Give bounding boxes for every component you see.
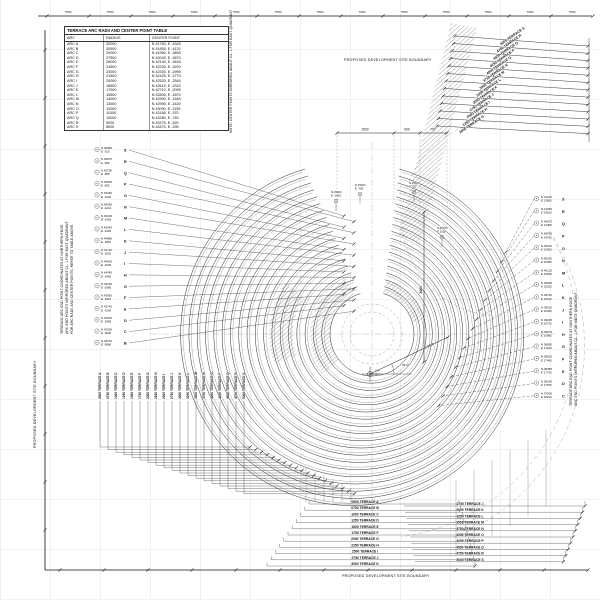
point-marker-dot bbox=[97, 319, 98, 320]
terrace-letter: L bbox=[124, 228, 127, 232]
point-marker-dot bbox=[536, 395, 537, 396]
terrace-row-label: 5000 TERRACE S bbox=[456, 558, 484, 562]
leader-tick bbox=[462, 346, 465, 349]
terrace-letter: S bbox=[562, 198, 565, 202]
bottom-boundary-label: PROPOSED DEVELOPMENT SITE BOUNDARY bbox=[342, 574, 430, 578]
terrace-row-label: 2500 TERRACE I bbox=[352, 550, 378, 554]
terrace-stair-label: 2750 TERRACE J bbox=[170, 373, 174, 399]
terrace-stair-label: 2000 TERRACE G bbox=[146, 372, 150, 399]
leader-tick bbox=[352, 242, 355, 245]
terrace-stair-label: 3250 TERRACE L bbox=[186, 373, 190, 399]
terrace-letter: I bbox=[124, 262, 125, 266]
coord-leader bbox=[506, 199, 534, 252]
top-boundary-label: PROPOSED DEVELOPMENT SITE BOUNDARY bbox=[344, 58, 432, 62]
terrace-row-label: 4750 TERRACE R bbox=[456, 552, 484, 556]
terrace-stair-label: 4000 TERRACE O bbox=[210, 372, 214, 399]
terrace-stair-label: 4750 TERRACE R bbox=[234, 372, 238, 399]
left-boundary-label: PROPOSED DEVELOPMENT SITE BOUNDARY bbox=[33, 360, 37, 448]
coord-east: E 18210 bbox=[541, 395, 552, 399]
boundary-segment-dim: 7500 bbox=[107, 10, 114, 14]
terrace-stair-label: 1750 TERRACE F bbox=[138, 373, 142, 399]
point-marker-dot bbox=[97, 297, 98, 298]
terrace-arc-inner-edge bbox=[191, 179, 515, 496]
terrace-letter: E bbox=[562, 370, 565, 374]
terrace-letter: M bbox=[124, 217, 127, 221]
coord-east: E 16725 bbox=[541, 321, 552, 325]
terrace-letter: D bbox=[562, 382, 565, 386]
terrace-stair-label: 4250 TERRACE P bbox=[218, 372, 222, 399]
point-marker-dot bbox=[97, 342, 98, 343]
leader-tick bbox=[352, 220, 355, 223]
coord-east: E 14465 bbox=[541, 223, 552, 227]
terrace-row-label: 1000 TERRACE C bbox=[351, 512, 379, 516]
point-marker-dot bbox=[536, 309, 537, 310]
terrace-letter: R bbox=[124, 160, 127, 164]
coord-east: E 17735 bbox=[541, 371, 552, 375]
point-marker-dot bbox=[536, 260, 537, 261]
terrace-letter: R bbox=[562, 210, 565, 214]
point-marker-dot bbox=[97, 217, 98, 218]
coord-east: E -3385 bbox=[101, 320, 112, 324]
terrace-letter: K bbox=[124, 239, 127, 243]
terrace-row-label: 3250 TERRACE L bbox=[456, 514, 483, 518]
leader-tick bbox=[479, 308, 482, 311]
terrace-letter: K bbox=[562, 296, 565, 300]
point-marker-dot bbox=[536, 210, 537, 211]
terrace-letter: H bbox=[124, 273, 127, 277]
coord-east: E -1020 bbox=[101, 195, 112, 199]
terrace-arc-inner-edge bbox=[224, 207, 490, 468]
terrace-fan-line bbox=[449, 66, 588, 75]
left-note-line-3: FOR ARC RADII AND CENTER POINTS, REFER T… bbox=[70, 221, 75, 334]
terrace-letter: S bbox=[124, 149, 127, 153]
point-marker-dot bbox=[536, 235, 537, 236]
terrace-letter: M bbox=[562, 271, 565, 275]
coord-leader bbox=[489, 248, 534, 290]
point-marker-dot bbox=[97, 194, 98, 195]
coord-leader bbox=[129, 195, 344, 238]
point-marker-dot bbox=[336, 201, 337, 202]
coord-east: E 17975 bbox=[541, 383, 552, 387]
terrace-stair-label: 3000 TERRACE K bbox=[178, 372, 182, 399]
point-marker-dot bbox=[360, 194, 361, 195]
point-marker-dot bbox=[442, 237, 443, 238]
table-note: NOTE: CENTER POINTS MIRRORED ABOUT CL. 1… bbox=[229, 10, 233, 133]
coord-leader bbox=[129, 173, 344, 228]
coord-leader bbox=[502, 211, 534, 261]
terrace-row-label: 4500 TERRACE Q bbox=[456, 545, 484, 549]
coord-east: E 17490 bbox=[541, 358, 552, 362]
terrace-fan-line bbox=[452, 51, 588, 61]
coord-east: E -2680 bbox=[101, 286, 112, 290]
point-marker-dot bbox=[536, 198, 537, 199]
terrace-stair-label: 2250 TERRACE H bbox=[154, 372, 158, 399]
point-marker-dot bbox=[97, 240, 98, 241]
terrace-row-label: 3000 TERRACE K bbox=[351, 562, 379, 566]
leader-tick bbox=[342, 226, 345, 229]
point-marker-dot bbox=[536, 284, 537, 285]
coord-east: E -1500 bbox=[331, 193, 341, 197]
coord-east: E 16190 bbox=[541, 297, 552, 301]
leader-tick bbox=[352, 231, 355, 234]
coord-east: E 14160 bbox=[541, 211, 552, 215]
point-marker-dot bbox=[536, 247, 537, 248]
point-marker-dot bbox=[97, 149, 98, 150]
point-marker-dot bbox=[97, 285, 98, 286]
angle-arc bbox=[392, 364, 394, 374]
coord-leader bbox=[498, 224, 534, 272]
boundary-segment-dim: 7500 bbox=[65, 10, 72, 14]
coord-east: E -750 bbox=[355, 186, 364, 190]
coord-east: E -480 bbox=[101, 161, 110, 165]
terrace-fan-line bbox=[445, 89, 589, 98]
terrace-hatch-mid bbox=[269, 283, 305, 363]
arc-table-title: TERRACE ARC RADII AND CENTER POINT TABLE bbox=[65, 27, 228, 35]
terrace-letter: P bbox=[124, 183, 127, 187]
terrace-letter: C bbox=[562, 394, 565, 398]
point-marker-dot bbox=[97, 274, 98, 275]
coord-east: E -1605 bbox=[101, 229, 112, 233]
coord-leader bbox=[129, 289, 354, 298]
terrace-row-label: 2000 TERRACE G bbox=[351, 537, 379, 541]
coord-east: E 15060 bbox=[541, 248, 552, 252]
terrace-letter: E bbox=[124, 308, 127, 312]
boundary-segment-dim: 7500 bbox=[191, 10, 198, 14]
cell-arc: ARC S bbox=[65, 125, 104, 130]
coord-leader bbox=[129, 150, 344, 216]
terrace-fan-line bbox=[439, 119, 589, 127]
coord-east: E 14765 bbox=[541, 235, 552, 239]
terrace-letter: H bbox=[562, 333, 565, 337]
point-marker-dot bbox=[97, 251, 98, 252]
terrace-fan-line bbox=[442, 104, 589, 112]
terrace-stair-label: 2500 TERRACE I bbox=[162, 374, 166, 399]
point-marker-dot bbox=[97, 160, 98, 161]
terrace-letter: P bbox=[562, 235, 565, 239]
terrace-row-label: 1750 TERRACE F bbox=[351, 531, 378, 535]
coord-east: E 15635 bbox=[541, 272, 552, 276]
coord-east: E -2910 bbox=[101, 297, 112, 301]
terrace-arc bbox=[189, 176, 518, 498]
terrace-stair-label: 5000 TERRACE S bbox=[242, 373, 246, 399]
terrace-row-label: 0750 TERRACE B bbox=[351, 506, 379, 510]
dim-value: 900 bbox=[404, 128, 410, 132]
leader-tick bbox=[342, 237, 345, 240]
coord-leader bbox=[129, 241, 344, 261]
coord-leader bbox=[472, 297, 534, 328]
point-marker-dot bbox=[97, 263, 98, 264]
terrace-row-label: 4000 TERRACE O bbox=[456, 533, 484, 537]
coord-leader bbox=[443, 384, 534, 397]
leader-tick bbox=[483, 298, 486, 301]
terrace-letter: D bbox=[124, 319, 127, 323]
point-marker-dot bbox=[97, 172, 98, 173]
cell-center: N 43470, E -295 bbox=[149, 125, 228, 130]
terrace-stair-label: 3500 TERRACE M bbox=[194, 372, 198, 399]
terrace-stair-label: 1000 TERRACE C bbox=[114, 372, 118, 399]
leader-tick bbox=[492, 279, 495, 282]
terrace-row-label: 1500 TERRACE E bbox=[351, 525, 379, 529]
cell-radius: 8500 bbox=[104, 125, 150, 130]
coord-leader bbox=[129, 275, 354, 278]
coord-east: E 17240 bbox=[541, 346, 552, 350]
coord-east: E -3630 bbox=[101, 331, 112, 335]
terrace-stair-label: 0750 TERRACE B bbox=[106, 372, 110, 399]
terrace-row-label: 4250 TERRACE P bbox=[456, 539, 484, 543]
point-marker-dot bbox=[536, 223, 537, 224]
coord-east: E -1810 bbox=[101, 240, 112, 244]
point-marker-dot bbox=[97, 183, 98, 184]
point-marker-dot bbox=[97, 206, 98, 207]
coord-east: E 1500 bbox=[437, 229, 446, 233]
boundary-segment-dim: 7500 bbox=[527, 10, 534, 14]
terrace-row-label: 0500 TERRACE A bbox=[351, 500, 379, 504]
terrace-letter: O bbox=[562, 247, 565, 251]
boundary-segment-dim: 7500 bbox=[317, 10, 324, 14]
terrace-fan-line bbox=[440, 111, 588, 119]
terrace-fan-line bbox=[448, 74, 589, 83]
coord-leader bbox=[485, 261, 534, 301]
terrace-row-label: 2750 TERRACE J bbox=[352, 556, 379, 560]
boundary-segment-dim: 7500 bbox=[275, 10, 282, 14]
terrace-stair-label: 1500 TERRACE E bbox=[130, 373, 134, 399]
terrace-letter: B bbox=[124, 342, 127, 346]
coord-east: E -310 bbox=[101, 149, 110, 153]
arc-radii-table: TERRACE ARC RADII AND CENTER POINT TABLE… bbox=[64, 26, 229, 131]
terrace-stair-label: 0500 TERRACE A bbox=[98, 372, 102, 399]
construction-arc bbox=[454, 232, 585, 538]
coord-east: E 13850 bbox=[541, 198, 552, 202]
terrace-letter: F bbox=[562, 358, 565, 362]
coord-east: E 16985 bbox=[541, 334, 552, 338]
terrace-row-label: 2250 TERRACE H bbox=[351, 543, 379, 547]
point-marker-dot bbox=[97, 228, 98, 229]
boundary-segment-dim: 7500 bbox=[149, 10, 156, 14]
coord-east: E 15915 bbox=[541, 285, 552, 289]
boundary-segment-dim: 7500 bbox=[359, 10, 366, 14]
terrace-fan-line bbox=[454, 44, 589, 54]
boundary-segment-dim: 7500 bbox=[485, 10, 492, 14]
terrace-fan-line bbox=[446, 81, 588, 90]
point-marker-dot bbox=[536, 370, 537, 371]
terrace-row-label: 3500 TERRACE M bbox=[456, 521, 484, 525]
terrace-arc bbox=[264, 238, 463, 433]
boundary-segment-dim: 7500 bbox=[569, 10, 576, 14]
terrace-letter: L bbox=[562, 284, 565, 288]
terrace-arc-inner-edge bbox=[266, 241, 460, 431]
coord-east: E -1405 bbox=[101, 218, 112, 222]
terrace-row-label: 3000 TERRACE K bbox=[456, 508, 484, 512]
terrace-letter: Q bbox=[124, 171, 127, 175]
terrace-arc bbox=[222, 204, 493, 470]
terrace-stair-label: 3750 TERRACE N bbox=[202, 372, 206, 399]
coord-east: E -2455 bbox=[101, 274, 112, 278]
terrace-row-label: 2750 TERRACE J bbox=[457, 502, 484, 506]
point-marker-dot bbox=[536, 383, 537, 384]
point-marker-dot bbox=[536, 321, 537, 322]
terrace-arc-inner-edge bbox=[183, 172, 521, 503]
right-note-line-2: ARC END POINTS MIRRORED ABOUT CL. 1 FOR … bbox=[574, 292, 579, 406]
terrace-fan-line bbox=[451, 59, 589, 68]
coord-east: E -2235 bbox=[101, 263, 112, 267]
drawing-sheet: 7500750075007500750075007500750075007500… bbox=[0, 0, 600, 600]
table-row: ARC S8500N 43470, E -295 bbox=[65, 125, 228, 130]
coord-east: E 16460 bbox=[541, 309, 552, 313]
terrace-letter: J bbox=[124, 251, 126, 255]
coord-leader bbox=[129, 294, 344, 309]
leader-tick bbox=[467, 337, 470, 340]
right-quadrant-note: TERRACE ARC END POINT COORDINATES AT SOU… bbox=[569, 292, 579, 406]
dim-value: 750 bbox=[430, 128, 436, 132]
terrace-stair-label: 1250 TERRACE D bbox=[122, 372, 126, 399]
coord-east: E -3880 bbox=[101, 342, 112, 346]
angle-value: 45.0° bbox=[402, 363, 410, 367]
terrace-fan-line bbox=[443, 96, 588, 104]
coord-east: E 15350 bbox=[541, 260, 552, 264]
leader-tick bbox=[342, 214, 345, 217]
terrace-letter: F bbox=[124, 296, 127, 300]
terrace-arc bbox=[272, 245, 457, 426]
point-marker-dot bbox=[97, 308, 98, 309]
terrace-letter: N bbox=[562, 259, 565, 263]
coord-east: E -3145 bbox=[101, 308, 112, 312]
coord-leader bbox=[129, 283, 344, 286]
terrace-row-label: 3750 TERRACE N bbox=[456, 527, 484, 531]
terrace-letter: C bbox=[124, 330, 127, 334]
terrace-letter: G bbox=[124, 285, 127, 289]
point-marker-dot bbox=[536, 358, 537, 359]
boundary-segment-dim: 7500 bbox=[233, 10, 240, 14]
terrace-letter: Q bbox=[562, 222, 565, 226]
terrace-letter: G bbox=[562, 345, 565, 349]
point-marker-dot bbox=[414, 192, 415, 193]
terrace-letter: N bbox=[124, 205, 127, 209]
coord-east: E -655 bbox=[101, 172, 110, 176]
terrace-row-label: 1250 TERRACE D bbox=[351, 519, 379, 523]
point-marker-dot bbox=[536, 296, 537, 297]
point-marker-dot bbox=[536, 272, 537, 273]
coord-east: E -1210 bbox=[101, 206, 112, 210]
coord-east: E -835 bbox=[101, 183, 110, 187]
terrace-letter: J bbox=[562, 308, 564, 312]
coord-east: E -2020 bbox=[101, 252, 112, 256]
left-quadrant-note: TERRACE ARC END POINT COORDINATES AT NOR… bbox=[60, 221, 75, 334]
dim-value: 3464 bbox=[419, 286, 423, 294]
boundary-segment-dim: 7500 bbox=[401, 10, 408, 14]
terrace-letter: I bbox=[562, 321, 563, 325]
coord-east: E 750 bbox=[409, 184, 417, 188]
point-marker-dot bbox=[536, 333, 537, 334]
boundary-segment-dim: 7500 bbox=[443, 10, 450, 14]
point-marker-dot bbox=[97, 331, 98, 332]
terrace-stair-label: 4500 TERRACE Q bbox=[226, 372, 230, 399]
terrace-arc bbox=[197, 183, 511, 491]
terrace-fan-line bbox=[455, 36, 588, 46]
terrace-letter: O bbox=[124, 194, 127, 198]
dim-value: 1500 bbox=[361, 128, 369, 132]
point-marker-dot bbox=[536, 346, 537, 347]
